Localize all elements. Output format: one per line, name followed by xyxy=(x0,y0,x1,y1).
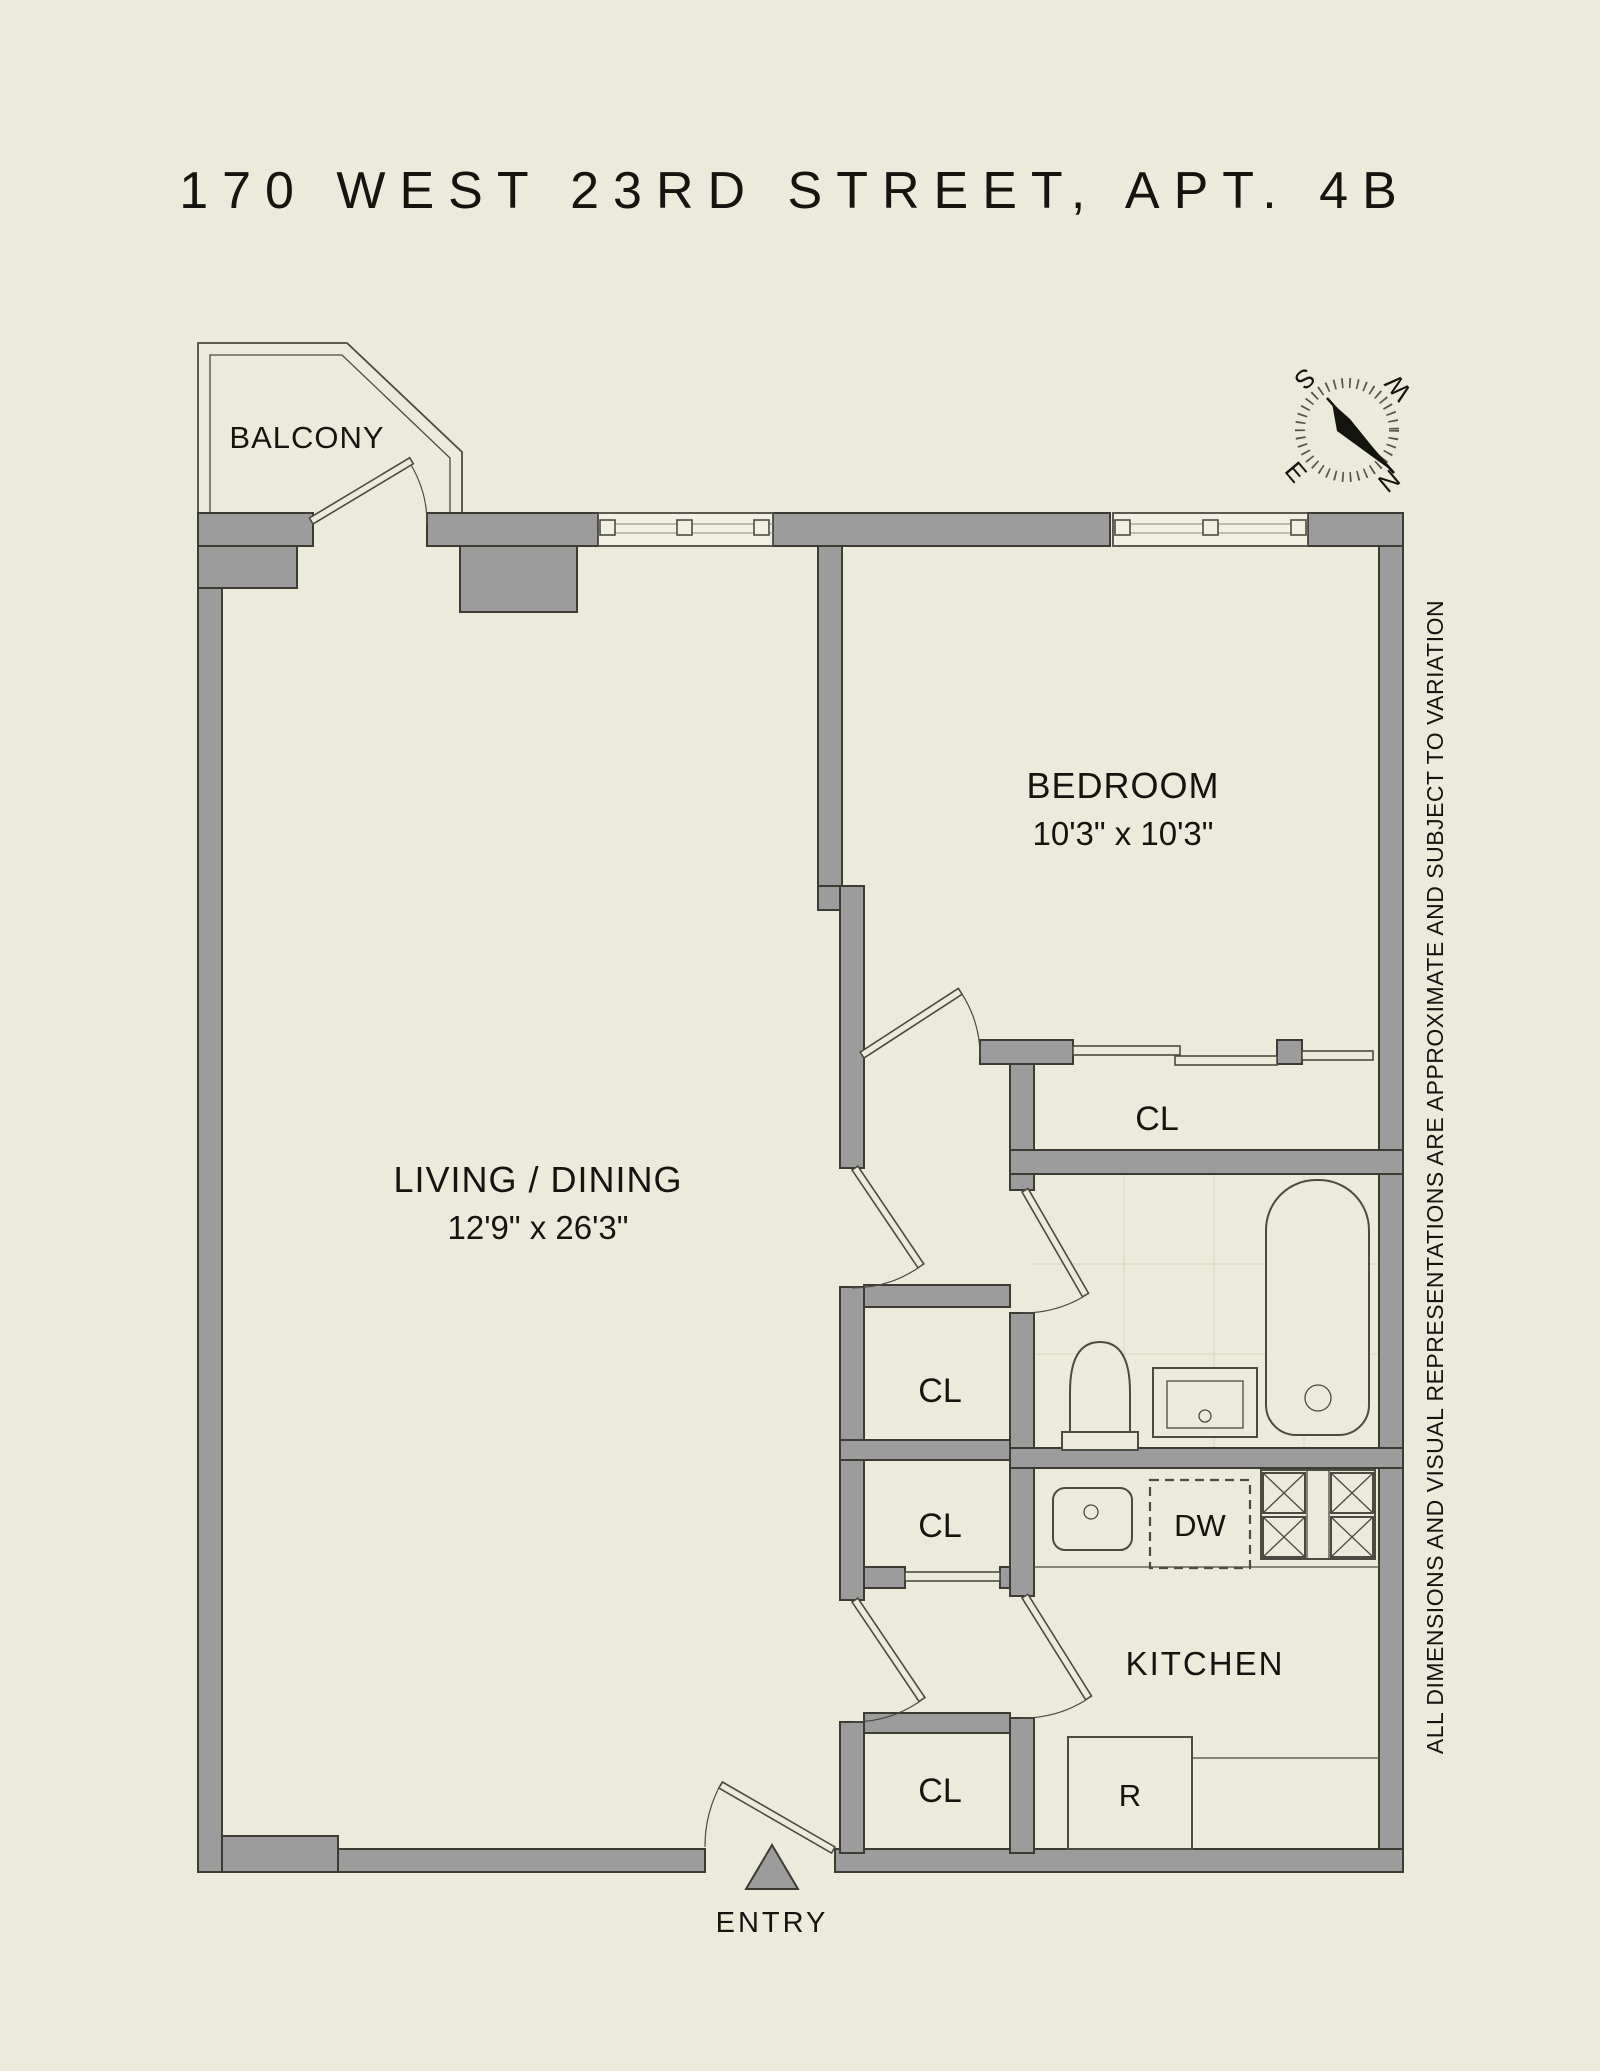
wall-segment xyxy=(840,1722,864,1853)
window-living xyxy=(598,513,773,546)
hall-closet-upper-label: CL xyxy=(918,1372,961,1410)
bedroom-closet-sliding-door xyxy=(1073,1046,1373,1065)
wall-segment xyxy=(1010,1174,1034,1190)
burner xyxy=(1263,1473,1305,1513)
bedroom-door xyxy=(860,988,980,1058)
wall-segment xyxy=(864,1713,1010,1733)
bedroom-dimensions: 10'3" x 10'3" xyxy=(1033,815,1214,852)
hall-door-upper xyxy=(852,1166,924,1288)
burner xyxy=(1331,1473,1373,1513)
floor-plan-svg: 170 WEST 23RD STREET, APT. 4B ALL DIMENS… xyxy=(0,0,1600,2071)
page-title: 170 WEST 23RD STREET, APT. 4B xyxy=(179,162,1411,220)
entry-door xyxy=(705,1782,835,1853)
entry-label: ENTRY xyxy=(716,1907,829,1939)
bedroom-label: BEDROOM xyxy=(1026,765,1219,806)
compass-south-label: S xyxy=(1289,362,1322,396)
bathroom-sink xyxy=(1153,1368,1257,1437)
toilet xyxy=(1062,1342,1138,1450)
refrigerator: R xyxy=(1068,1737,1192,1849)
disclaimer-text: ALL DIMENSIONS AND VISUAL REPRESENTATION… xyxy=(1422,600,1448,1754)
wall-segment xyxy=(1379,513,1403,1872)
wall-segment xyxy=(1277,1040,1302,1064)
dishwasher-label: DW xyxy=(1174,1508,1226,1543)
window-bedroom xyxy=(1113,513,1308,546)
refrigerator-label: R xyxy=(1119,1778,1141,1813)
wall-segment xyxy=(818,546,842,910)
compass-needle xyxy=(1332,403,1392,471)
bathroom-door xyxy=(1022,1189,1089,1314)
wall-segment xyxy=(980,1040,1073,1064)
wall-segment xyxy=(427,513,598,546)
wall-segment xyxy=(864,1285,1010,1307)
kitchen-label: KITCHEN xyxy=(1126,1645,1285,1682)
wall-segment xyxy=(198,513,313,546)
balcony-door xyxy=(309,458,427,524)
entry-closet-label: CL xyxy=(918,1772,961,1810)
balcony-label: BALCONY xyxy=(229,420,384,455)
stove xyxy=(1261,1470,1375,1559)
floor-plan-page: 170 WEST 23RD STREET, APT. 4B ALL DIMENS… xyxy=(0,0,1600,2071)
wall-segment xyxy=(1010,1150,1403,1174)
hall-closet-lower-label: CL xyxy=(918,1507,961,1545)
dishwasher: DW xyxy=(1150,1480,1250,1568)
wall-segment xyxy=(1010,1064,1034,1150)
wall-segment xyxy=(460,546,577,612)
living-dining-dimensions: 12'9" x 26'3" xyxy=(448,1209,629,1246)
hall-door-lower xyxy=(852,1598,925,1722)
hall-closet-sliding-door xyxy=(905,1572,1000,1581)
bathtub xyxy=(1266,1180,1369,1435)
wall-segment xyxy=(198,546,297,588)
wall-segment xyxy=(773,513,1110,546)
bedroom-closet-label: CL xyxy=(1135,1100,1178,1138)
wall-segment xyxy=(840,1440,1034,1460)
wall-segment xyxy=(198,513,222,1872)
kitchen-door xyxy=(1022,1594,1092,1718)
compass-north-label: N xyxy=(1372,463,1406,498)
wall-segment xyxy=(1010,1718,1034,1853)
living-dining-label: LIVING / DINING xyxy=(393,1159,682,1200)
compass-west-label: W xyxy=(1378,369,1417,407)
kitchen-sink xyxy=(1053,1488,1132,1550)
wall-segment xyxy=(1308,513,1403,546)
burner xyxy=(1331,1517,1373,1557)
compass: N S E W xyxy=(1279,362,1417,499)
burner xyxy=(1263,1517,1305,1557)
wall-segment xyxy=(222,1836,338,1872)
wall-segment xyxy=(835,1849,1403,1872)
wall-segment xyxy=(840,886,864,1168)
entry-triangle xyxy=(746,1845,798,1889)
wall-segment xyxy=(864,1567,905,1588)
